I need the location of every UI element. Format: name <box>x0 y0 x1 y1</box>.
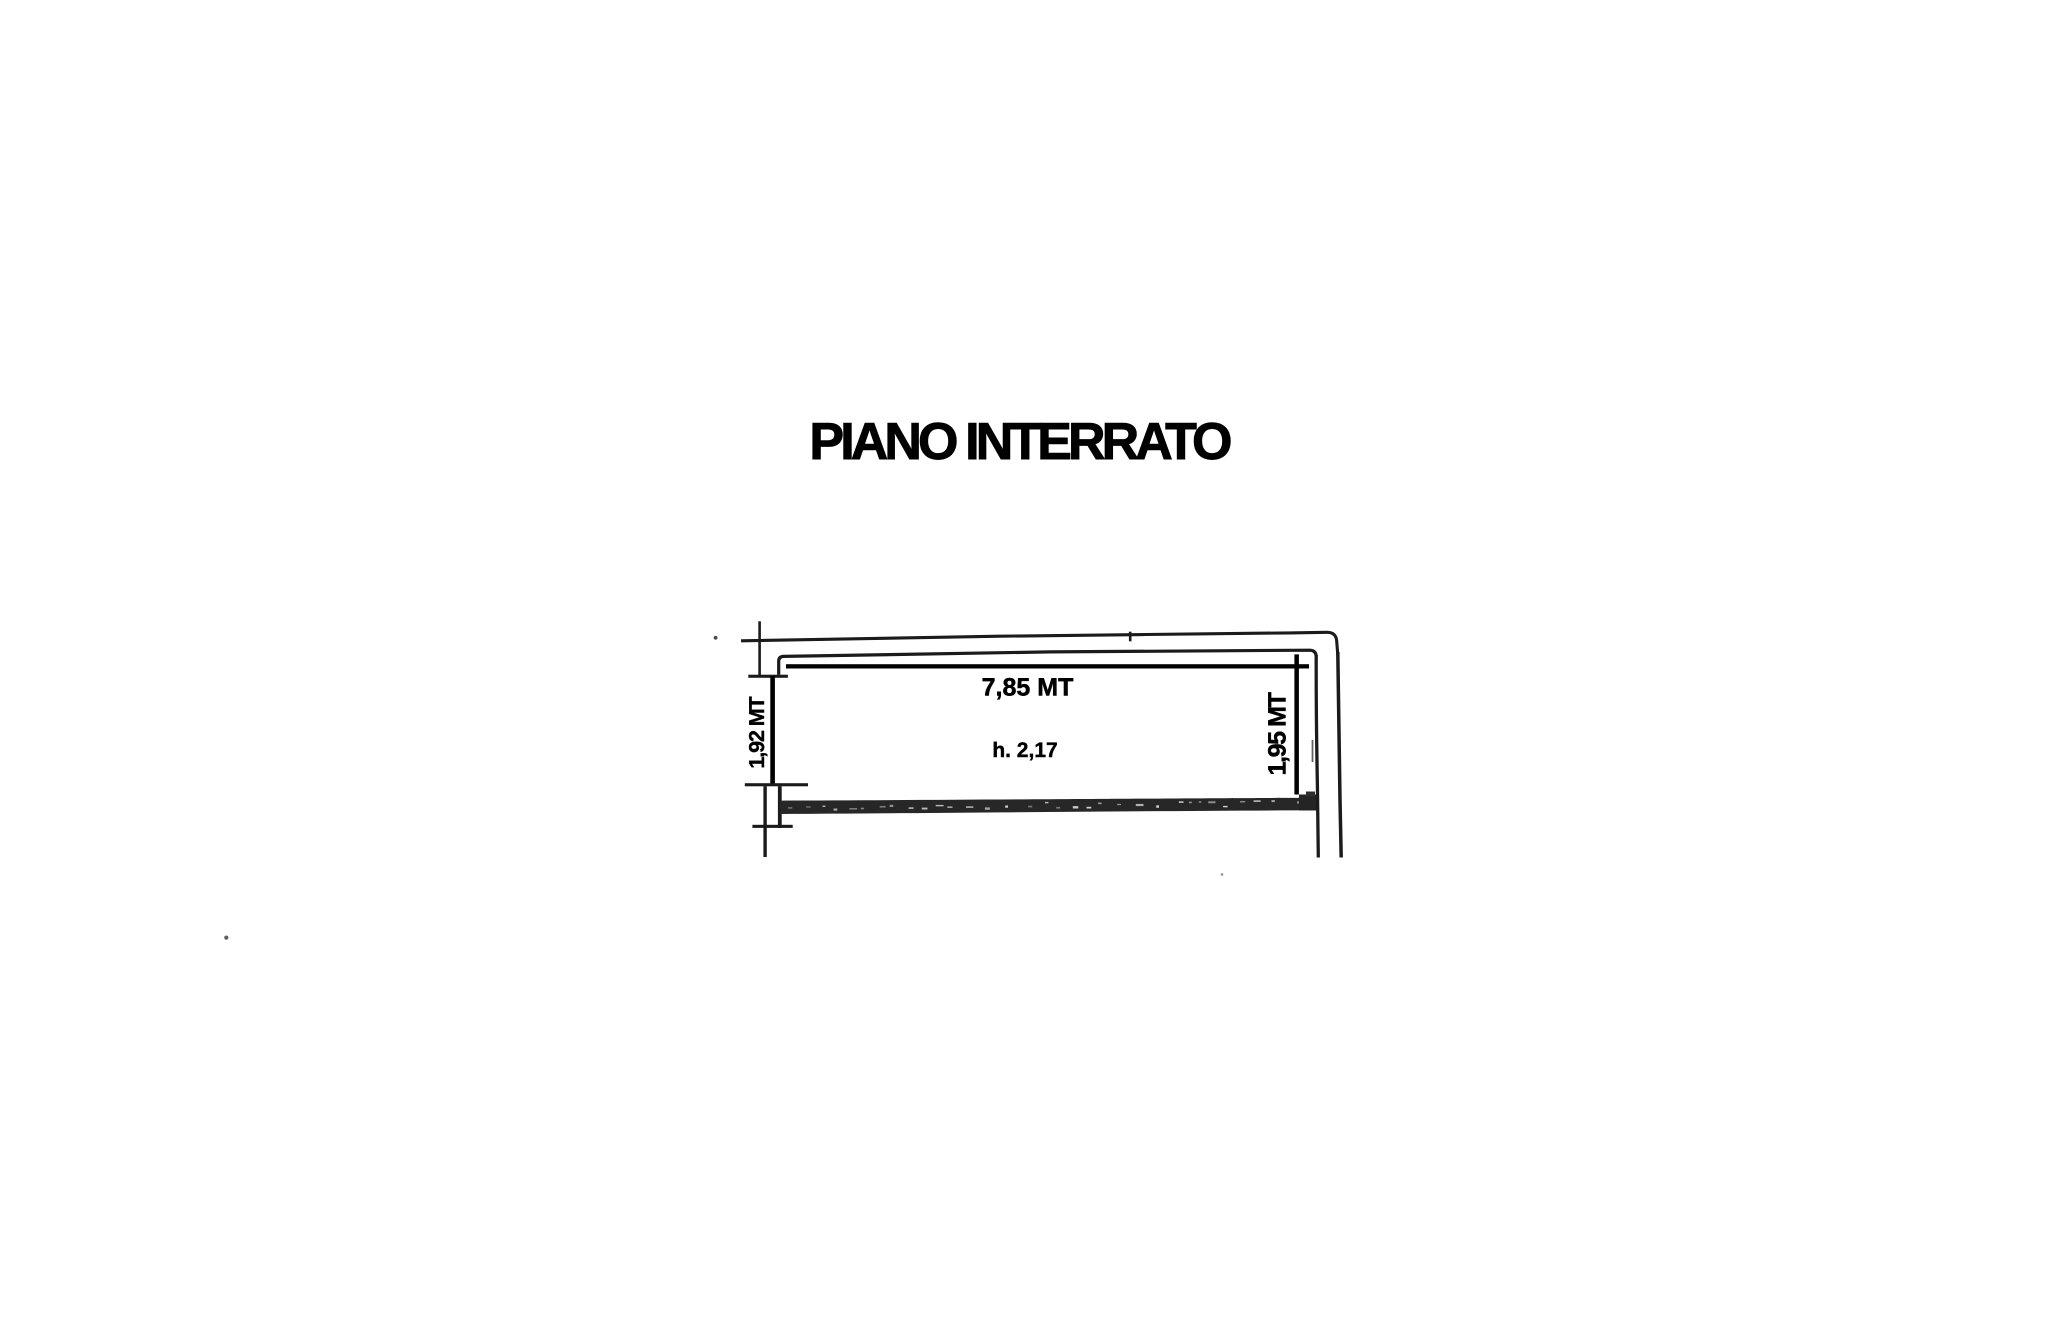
svg-text:7,85 MT: 7,85 MT <box>982 674 1074 702</box>
svg-text:PIANO INTERRATO: PIANO INTERRATO <box>809 413 1231 471</box>
svg-text:h. 2,17: h. 2,17 <box>992 739 1057 762</box>
svg-text:1,92 MT: 1,92 MT <box>745 696 769 768</box>
svg-text:1,95 MT: 1,95 MT <box>1264 692 1292 775</box>
